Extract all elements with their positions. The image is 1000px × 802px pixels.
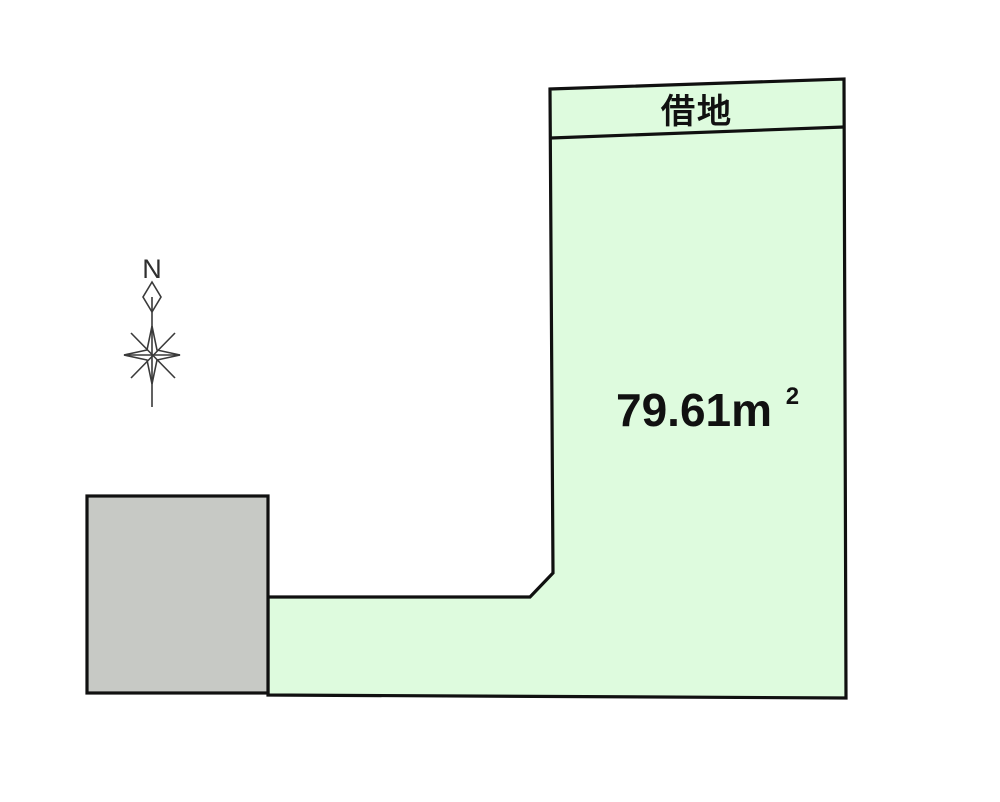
site-plan-drawing: 借地 79.61m 2 N [0, 0, 1000, 802]
area-exponent: 2 [786, 383, 799, 410]
site-plan-canvas: 借地 79.61m 2 N [0, 0, 1000, 802]
leasehold-band-label: 借地 [660, 93, 733, 131]
compass-north-label: N [142, 254, 162, 284]
area-value-unit: 79.61m [616, 384, 772, 436]
adjacent-building-shape [87, 496, 268, 693]
area-label: 79.61m 2 [616, 383, 799, 436]
